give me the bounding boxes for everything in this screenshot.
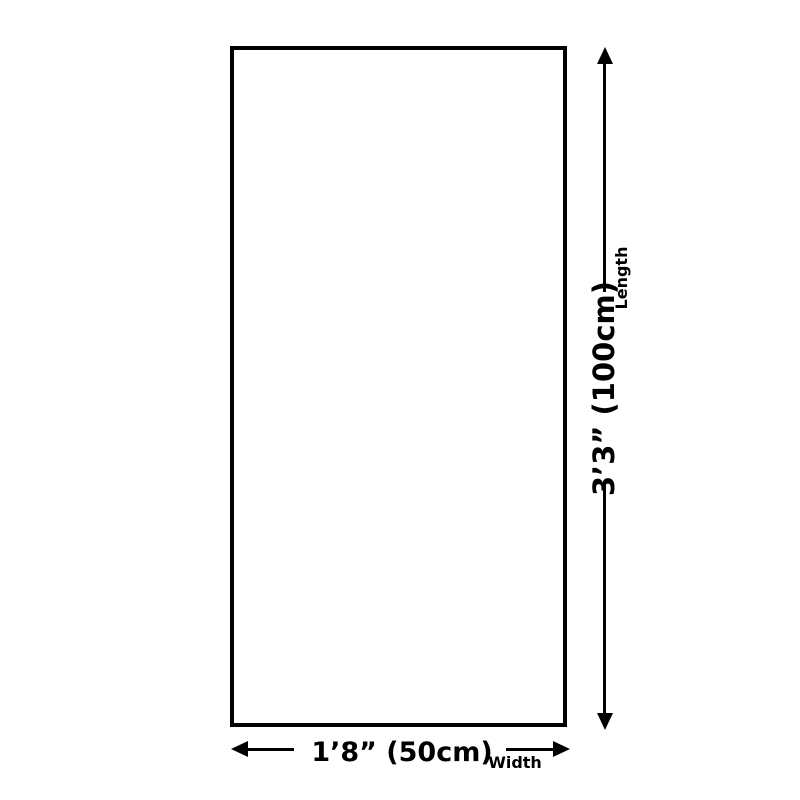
product-outline-rectangle [230,46,567,727]
length-arrow-down-icon [597,713,613,730]
width-dimension-line-right [506,748,556,751]
width-axis-label: Width [470,753,560,772]
width-dimension-line-left [244,748,294,751]
length-dimension-value: 3’3” (100cm) [589,286,619,496]
size-diagram: Length 3’3” (100cm) 1’8” (50cm) Width [0,0,800,800]
length-dimension-line-bottom [603,483,606,716]
width-arrow-right-icon [553,741,570,757]
length-dimension-line-top [603,62,606,292]
